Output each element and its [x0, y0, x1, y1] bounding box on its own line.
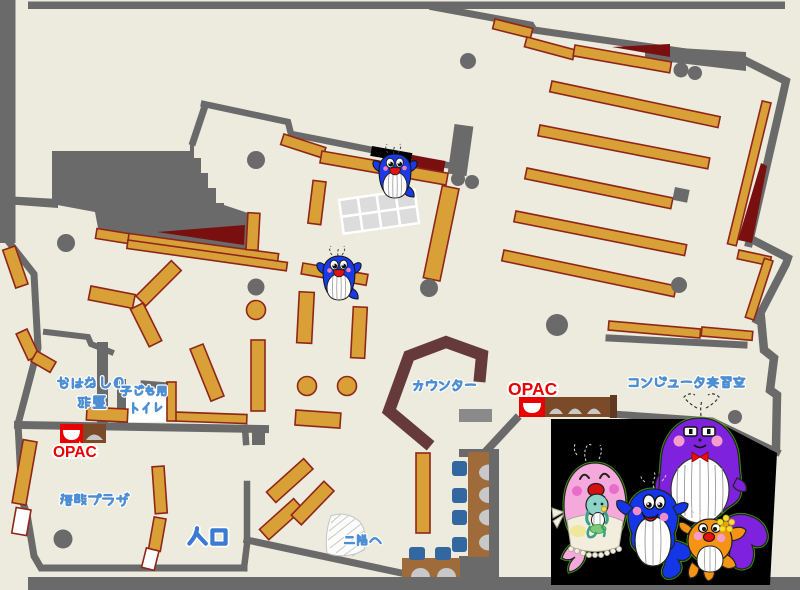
svg-text:OPAC: OPAC: [53, 444, 97, 461]
svg-text:OPAC: OPAC: [508, 379, 558, 399]
